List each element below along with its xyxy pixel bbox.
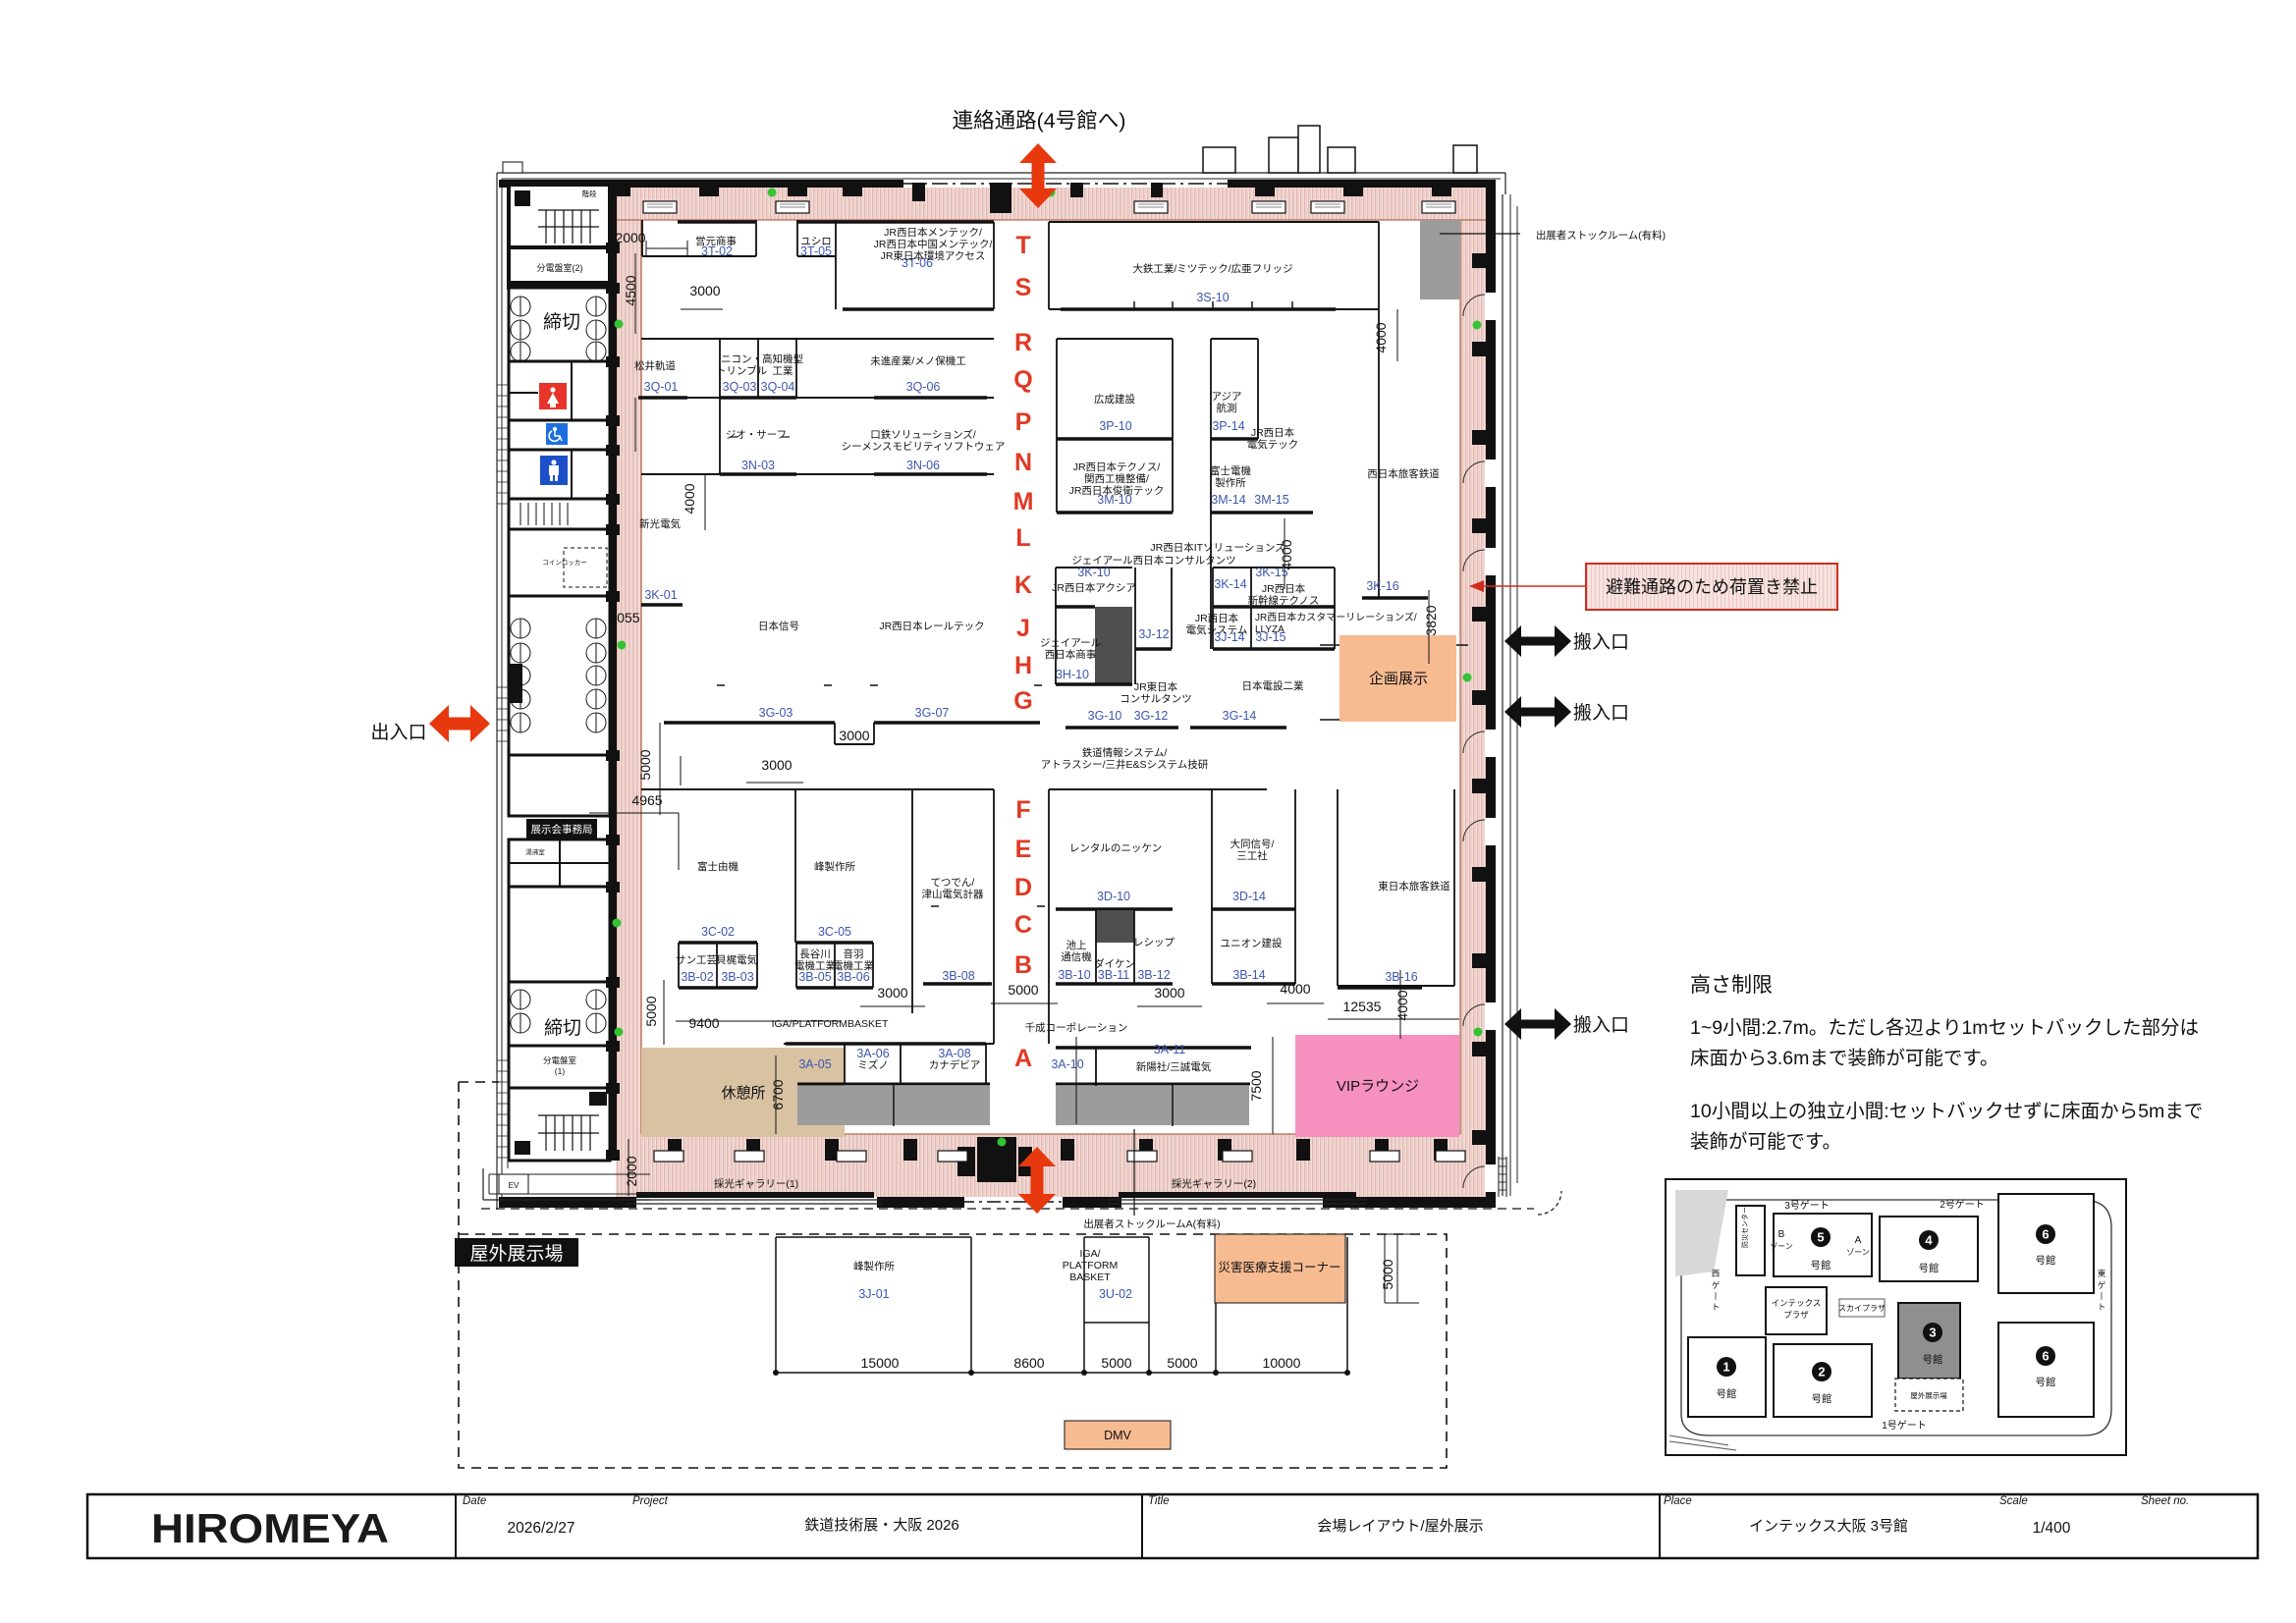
svg-text:1/400: 1/400 — [2033, 1520, 2071, 1537]
svg-text:LLYZA: LLYZA — [1255, 624, 1285, 635]
svg-text:連絡通路(4号館へ): 連絡通路(4号館へ) — [953, 109, 1126, 133]
svg-text:4000: 4000 — [682, 483, 697, 514]
svg-text:カナデビア: カナデビア — [929, 1058, 981, 1071]
svg-text:3: 3 — [1929, 1325, 1936, 1340]
svg-text:インテックス大阪 3号館: インテックス大阪 3号館 — [1749, 1518, 1908, 1535]
svg-text:アジア: アジア — [1211, 391, 1241, 403]
svg-text:3J-01: 3J-01 — [858, 1287, 889, 1301]
svg-text:N: N — [1014, 449, 1032, 476]
svg-text:JR西日本中国メンテック/: JR西日本中国メンテック/ — [874, 238, 993, 250]
svg-text:3D-14: 3D-14 — [1232, 890, 1266, 903]
svg-text:IGA/PLATFORMBASKET: IGA/PLATFORMBASKET — [772, 1018, 889, 1030]
svg-text:3B-10: 3B-10 — [1058, 968, 1090, 982]
svg-text:てつでん/: てつでん/ — [931, 877, 975, 889]
svg-text:インテックス: インテックス — [1772, 1298, 1822, 1308]
svg-text:3号ゲート: 3号ゲート — [1784, 1200, 1830, 1212]
svg-text:P: P — [1015, 408, 1032, 436]
svg-text:2号ゲート: 2号ゲート — [1940, 1199, 1985, 1211]
svg-text:階段: 階段 — [582, 189, 597, 198]
svg-text:屋外展示場: 屋外展示場 — [1910, 1390, 1947, 1400]
svg-text:BASKET: BASKET — [1069, 1271, 1111, 1283]
svg-text:K: K — [1014, 571, 1032, 599]
svg-text:電機工業: 電機工業 — [794, 959, 836, 972]
svg-text:ニコン・: ニコン・ — [721, 353, 762, 365]
svg-text:営元商事: 営元商事 — [695, 235, 737, 247]
svg-text:松井軌道: 松井軌道 — [634, 359, 676, 372]
svg-text:D: D — [1014, 874, 1032, 901]
svg-text:トリンブル: トリンブル — [716, 364, 767, 377]
svg-text:1: 1 — [1722, 1360, 1729, 1375]
svg-text:JR西日本: JR西日本 — [1262, 582, 1306, 595]
svg-text:西日本商事: 西日本商事 — [1045, 648, 1097, 661]
svg-text:6700: 6700 — [770, 1079, 786, 1109]
svg-text:3U-02: 3U-02 — [1099, 1287, 1132, 1301]
svg-text:3000: 3000 — [839, 728, 869, 743]
svg-text:関西工機整備/: 関西工機整備/ — [1084, 472, 1149, 485]
svg-text:JR西日本: JR西日本 — [1195, 612, 1239, 624]
svg-text:3G-03: 3G-03 — [759, 706, 793, 720]
svg-text:ジェイアール西日本コンサルタンツ: ジェイアール西日本コンサルタンツ — [1071, 554, 1235, 567]
svg-text:ジオ・サーフ: ジオ・サーフ — [726, 429, 787, 441]
svg-text:Date: Date — [463, 1495, 486, 1507]
svg-text:12535: 12535 — [1343, 999, 1382, 1014]
svg-text:床面から3.6mまで装飾が可能です。: 床面から3.6mまで装飾が可能です。 — [1690, 1048, 1998, 1069]
svg-text:M: M — [1013, 488, 1034, 515]
svg-text:3K-14: 3K-14 — [1214, 577, 1246, 591]
svg-text:3J-12: 3J-12 — [1138, 627, 1169, 641]
svg-text:3H-10: 3H-10 — [1056, 668, 1089, 681]
svg-text:Project: Project — [632, 1495, 669, 1507]
svg-text:4000: 4000 — [1280, 981, 1310, 997]
svg-text:休憩所: 休憩所 — [721, 1085, 765, 1102]
svg-text:展示会事務局: 展示会事務局 — [531, 823, 593, 836]
svg-text:3D-10: 3D-10 — [1097, 890, 1130, 903]
svg-text:2: 2 — [1818, 1365, 1825, 1380]
svg-text:3K-10: 3K-10 — [1077, 566, 1110, 579]
svg-text:ユシロ: ユシロ — [800, 236, 832, 247]
svg-text:湯沸室: 湯沸室 — [525, 847, 545, 856]
svg-text:6: 6 — [2042, 1349, 2049, 1364]
svg-text:分電盤室(2): 分電盤室(2) — [537, 262, 583, 273]
svg-text:西日本旅客鉄道: 西日本旅客鉄道 — [1367, 467, 1440, 480]
svg-text:アトラスシー/三井E&Sシステム技研: アトラスシー/三井E&Sシステム技研 — [1041, 758, 1209, 771]
svg-text:3820: 3820 — [1423, 605, 1439, 635]
svg-text:4000: 4000 — [1394, 990, 1410, 1020]
svg-text:航測: 航測 — [1217, 402, 1237, 414]
svg-text:3M-14: 3M-14 — [1211, 493, 1245, 507]
svg-text:日本電設二業: 日本電設二業 — [1242, 679, 1304, 692]
svg-text:企画展示: 企画展示 — [1369, 670, 1428, 687]
svg-text:3A-05: 3A-05 — [798, 1057, 831, 1071]
svg-text:池上: 池上 — [1066, 939, 1087, 951]
svg-text:3B-12: 3B-12 — [1137, 968, 1170, 982]
svg-text:津山電気計器: 津山電気計器 — [922, 888, 984, 900]
svg-text:3A-11: 3A-11 — [1154, 1043, 1185, 1056]
svg-text:ト: ト — [2098, 1302, 2106, 1312]
svg-text:レシップ: レシップ — [1133, 937, 1175, 948]
svg-text:工業: 工業 — [773, 364, 793, 377]
svg-text:3N-06: 3N-06 — [906, 459, 940, 472]
svg-text:JR西日本レールテック: JR西日本レールテック — [879, 620, 984, 632]
svg-text:装飾が可能です。: 装飾が可能です。 — [1690, 1131, 1841, 1153]
svg-text:JR西日本: JR西日本 — [1251, 426, 1295, 439]
svg-text:10小間以上の独立小間:セットバックせずに床面から5mまで: 10小間以上の独立小間:セットバックせずに床面から5mまで — [1690, 1101, 2203, 1122]
svg-text:3B-02: 3B-02 — [681, 970, 713, 984]
svg-text:2026/2/27: 2026/2/27 — [508, 1520, 575, 1537]
svg-text:音羽: 音羽 — [844, 947, 864, 960]
svg-text:千成コーポレーション: 千成コーポレーション — [1025, 1022, 1128, 1034]
svg-text:長谷川: 長谷川 — [799, 948, 831, 960]
svg-text:3A-10: 3A-10 — [1051, 1057, 1083, 1071]
svg-text:レンタルのニッケン: レンタルのニッケン — [1069, 842, 1162, 854]
svg-text:ゾーン: ゾーン — [1846, 1248, 1870, 1257]
svg-text:JR西日本カスタマーリレーションズ/: JR西日本カスタマーリレーションズ/ — [1255, 611, 1417, 623]
svg-text:分電盤室: 分電盤室 — [543, 1055, 577, 1065]
svg-text:3B-08: 3B-08 — [942, 969, 974, 983]
svg-text:B: B — [1778, 1229, 1785, 1240]
svg-text:JR西日本ITソリューションズ: JR西日本ITソリューションズ — [1150, 541, 1285, 554]
svg-text:2000: 2000 — [615, 230, 645, 245]
svg-text:三工社: 三工社 — [1236, 849, 1268, 862]
svg-text:富士電機: 富士電機 — [1210, 464, 1251, 477]
svg-text:スカイプラザ: スカイプラザ — [1838, 1304, 1886, 1313]
svg-text:Sheet no.: Sheet no. — [2141, 1495, 2189, 1507]
svg-text:L: L — [1015, 524, 1030, 552]
svg-text:東: 東 — [2098, 1269, 2106, 1278]
svg-text:新陽社/三誠電気: 新陽社/三誠電気 — [1136, 1060, 1212, 1073]
svg-text:3C-02: 3C-02 — [701, 925, 735, 939]
svg-text:ユニオン建設: ユニオン建設 — [1221, 937, 1283, 949]
svg-text:大鉄工業/ミツテック/広亜フリッジ: 大鉄工業/ミツテック/広亜フリッジ — [1132, 262, 1292, 275]
svg-text:電機工業: 電機工業 — [833, 959, 874, 972]
svg-text:ゾーン: ゾーン — [1770, 1242, 1793, 1251]
svg-text:出展者ストックルーム(有料): 出展者ストックルーム(有料) — [1536, 229, 1666, 242]
svg-text:PLATFORM: PLATFORM — [1063, 1260, 1118, 1271]
svg-text:3B-16: 3B-16 — [1385, 970, 1417, 984]
svg-text:電気テック: 電気テック — [1247, 438, 1299, 451]
svg-text:(1): (1) — [555, 1066, 566, 1076]
svg-text:JR西日本メンテック/: JR西日本メンテック/ — [884, 226, 982, 239]
svg-text:3000: 3000 — [877, 985, 907, 1001]
svg-text:VIPラウンジ: VIPラウンジ — [1337, 1078, 1419, 1095]
svg-text:富士由機: 富士由機 — [697, 860, 738, 873]
svg-text:F: F — [1015, 796, 1030, 824]
svg-text:5000: 5000 — [637, 749, 653, 780]
svg-text:5000: 5000 — [1008, 982, 1038, 998]
svg-text:5000: 5000 — [1380, 1259, 1395, 1289]
svg-text:高さ制限: 高さ制限 — [1690, 974, 1773, 997]
svg-text:3Q-06: 3Q-06 — [906, 380, 941, 394]
svg-text:出展者ストックルームA(有料): 出展者ストックルームA(有料) — [1083, 1217, 1220, 1230]
svg-text:J: J — [1016, 615, 1030, 642]
svg-text:3G-07: 3G-07 — [915, 706, 950, 720]
svg-text:B: B — [1014, 951, 1032, 979]
svg-text:5: 5 — [1817, 1230, 1824, 1245]
svg-text:3B-05: 3B-05 — [798, 970, 831, 984]
svg-text:C: C — [1014, 911, 1032, 939]
svg-text:防災センター: 防災センター — [1740, 1207, 1749, 1248]
svg-text:号館: 号館 — [1923, 1353, 1943, 1366]
svg-text:採光ギャラリー(2): 採光ギャラリー(2) — [1172, 1177, 1256, 1190]
svg-text:製作所: 製作所 — [1215, 476, 1246, 489]
svg-text:ジェイアール: ジェイアール — [1040, 637, 1101, 649]
svg-text:A: A — [1014, 1045, 1032, 1072]
svg-text:峰製作所: 峰製作所 — [853, 1260, 895, 1272]
svg-text:JR東日本環境アクセス: JR東日本環境アクセス — [881, 249, 986, 262]
svg-text:大同信号/: 大同信号/ — [1230, 838, 1275, 850]
svg-text:3P-14: 3P-14 — [1212, 419, 1244, 433]
svg-text:3B-06: 3B-06 — [837, 970, 869, 984]
svg-text:15000: 15000 — [861, 1355, 900, 1371]
svg-text:3N-03: 3N-03 — [741, 459, 775, 472]
svg-text:電気システム: 電気システム — [1186, 623, 1248, 636]
svg-text:JR東日本: JR東日本 — [1134, 680, 1178, 693]
svg-text:4: 4 — [1925, 1233, 1933, 1248]
svg-text:号館: 号館 — [1812, 1392, 1832, 1405]
svg-text:災害医療支援コーナー: 災害医療支援コーナー — [1218, 1260, 1340, 1274]
svg-text:EV: EV — [509, 1181, 519, 1190]
svg-text:7500: 7500 — [1248, 1070, 1264, 1101]
svg-text:口鉄ソリューションズ/: 口鉄ソリューションズ/ — [870, 428, 976, 441]
svg-text:丨: 丨 — [2098, 1291, 2106, 1301]
svg-text:Place: Place — [1664, 1495, 1692, 1507]
svg-text:5000: 5000 — [643, 996, 659, 1026]
svg-text:3000: 3000 — [761, 757, 792, 773]
svg-text:コンサルタンツ: コンサルタンツ — [1120, 693, 1192, 705]
svg-text:Title: Title — [1148, 1495, 1170, 1507]
svg-text:コインロッカー: コインロッカー — [542, 559, 587, 567]
svg-text:3B-14: 3B-14 — [1232, 968, 1265, 982]
svg-text:丨: 丨 — [1712, 1291, 1721, 1301]
svg-text:3S-10: 3S-10 — [1196, 291, 1229, 304]
svg-text:搬入口: 搬入口 — [1573, 702, 1629, 724]
svg-text:未進産業/メノ保機工: 未進産業/メノ保機工 — [870, 354, 965, 367]
svg-text:G: G — [1013, 687, 1032, 715]
svg-text:JR西日本テクノス/: JR西日本テクノス/ — [1073, 460, 1161, 473]
svg-text:採光ギャラリー(1): 採光ギャラリー(1) — [714, 1177, 798, 1190]
svg-text:8600: 8600 — [1013, 1355, 1044, 1371]
svg-text:3C-05: 3C-05 — [818, 925, 851, 939]
svg-text:新光電気: 新光電気 — [639, 517, 681, 530]
svg-text:会場レイアウト/屋外展示: 会場レイアウト/屋外展示 — [1317, 1518, 1483, 1535]
svg-text:号館: 号館 — [2036, 1254, 2056, 1267]
svg-text:3000: 3000 — [1154, 985, 1184, 1001]
svg-text:ミズノ: ミズノ — [857, 1058, 889, 1071]
svg-text:4500: 4500 — [623, 275, 638, 305]
svg-text:日本信号: 日本信号 — [758, 620, 799, 632]
svg-text:ゲ: ゲ — [2098, 1280, 2106, 1290]
svg-text:号館: 号館 — [2036, 1376, 2056, 1388]
svg-text:ト: ト — [1712, 1302, 1721, 1312]
svg-text:サン工芸: サン工芸 — [676, 953, 717, 966]
svg-text:鉄道情報システム/: 鉄道情報システム/ — [1082, 746, 1168, 759]
svg-text:10000: 10000 — [1263, 1355, 1301, 1371]
svg-text:西: 西 — [1712, 1269, 1721, 1278]
svg-text:ダイケン: ダイケン — [1094, 957, 1135, 970]
svg-text:峰製作所: 峰製作所 — [814, 860, 855, 873]
svg-text:2055: 2055 — [609, 610, 639, 625]
svg-text:4000: 4000 — [1373, 322, 1389, 352]
svg-text:プラザ: プラザ — [1783, 1310, 1809, 1320]
svg-text:鉄道技術展・大阪 2026: 鉄道技術展・大阪 2026 — [804, 1517, 959, 1534]
svg-text:3K-16: 3K-16 — [1366, 579, 1398, 593]
svg-text:貝梶電気: 貝梶電気 — [716, 953, 757, 966]
svg-text:3Q-04: 3Q-04 — [761, 380, 795, 394]
svg-text:JR西日本俊衛テック: JR西日本俊衛テック — [1069, 484, 1165, 497]
svg-text:避難通路のため荷置き禁止: 避難通路のため荷置き禁止 — [1606, 577, 1818, 597]
svg-text:3B-03: 3B-03 — [721, 970, 753, 984]
svg-text:東日本旅客鉄道: 東日本旅客鉄道 — [1378, 880, 1450, 893]
svg-text:3000: 3000 — [689, 283, 720, 298]
svg-text:ゲ: ゲ — [1712, 1280, 1721, 1290]
svg-text:5000: 5000 — [1101, 1355, 1131, 1371]
svg-text:屋外展示場: 屋外展示場 — [469, 1243, 563, 1265]
svg-text:HIROMEYA: HIROMEYA — [151, 1505, 389, 1551]
svg-text:A: A — [1855, 1235, 1862, 1246]
svg-text:3Q-01: 3Q-01 — [644, 380, 679, 394]
svg-text:Q: Q — [1013, 366, 1032, 394]
svg-text:締切: 締切 — [543, 311, 580, 333]
svg-text:号館: 号館 — [1919, 1262, 1940, 1274]
svg-text:3G-14: 3G-14 — [1223, 709, 1257, 723]
svg-text:JR西日本アクシア: JR西日本アクシア — [1052, 581, 1136, 594]
svg-text:IGA/: IGA/ — [1079, 1248, 1100, 1260]
svg-text:R: R — [1014, 329, 1032, 356]
svg-text:号館: 号館 — [1811, 1259, 1831, 1271]
svg-text:号館: 号館 — [1717, 1387, 1737, 1400]
svg-text:3P-10: 3P-10 — [1099, 419, 1131, 433]
svg-text:9400: 9400 — [688, 1015, 719, 1031]
svg-text:S: S — [1015, 274, 1032, 301]
svg-text:締切: 締切 — [544, 1017, 581, 1039]
svg-text:4965: 4965 — [631, 792, 662, 808]
svg-text:シーメンスモビリティソフトウェア: シーメンスモビリティソフトウェア — [842, 441, 1006, 453]
svg-text:2000: 2000 — [624, 1156, 639, 1186]
svg-text:5000: 5000 — [1167, 1355, 1197, 1371]
svg-text:1号ゲート: 1号ゲート — [1882, 1420, 1927, 1432]
svg-text:3M-15: 3M-15 — [1254, 493, 1288, 507]
svg-text:3A-08: 3A-08 — [938, 1047, 970, 1060]
svg-text:広成建設: 広成建設 — [1094, 393, 1135, 406]
svg-text:DMV: DMV — [1104, 1429, 1131, 1442]
svg-text:E: E — [1015, 836, 1032, 863]
svg-text:1~9小間:2.7m。ただし各辺より1mセットバックした部分: 1~9小間:2.7m。ただし各辺より1mセットバックした部分は — [1690, 1017, 2199, 1039]
svg-text:T: T — [1015, 232, 1030, 259]
svg-text:3A-06: 3A-06 — [856, 1047, 889, 1060]
svg-text:H: H — [1014, 652, 1032, 679]
svg-text:3K-01: 3K-01 — [644, 588, 677, 602]
svg-text:搬入口: 搬入口 — [1573, 1014, 1629, 1036]
svg-text:新幹線テクノス: 新幹線テクノス — [1248, 594, 1320, 607]
svg-text:3Q-03: 3Q-03 — [723, 380, 757, 394]
svg-text:3B-11: 3B-11 — [1098, 968, 1129, 982]
svg-text:3G-10: 3G-10 — [1088, 709, 1122, 723]
svg-text:出入口: 出入口 — [370, 722, 426, 743]
svg-text:4000: 4000 — [1279, 539, 1294, 569]
svg-text:6: 6 — [2042, 1227, 2049, 1242]
svg-text:3G-12: 3G-12 — [1134, 709, 1169, 723]
svg-text:Scale: Scale — [1999, 1495, 2028, 1507]
svg-text:通信機: 通信機 — [1061, 950, 1092, 963]
svg-text:高知機型: 高知機型 — [762, 352, 803, 365]
svg-text:搬入口: 搬入口 — [1573, 631, 1629, 653]
